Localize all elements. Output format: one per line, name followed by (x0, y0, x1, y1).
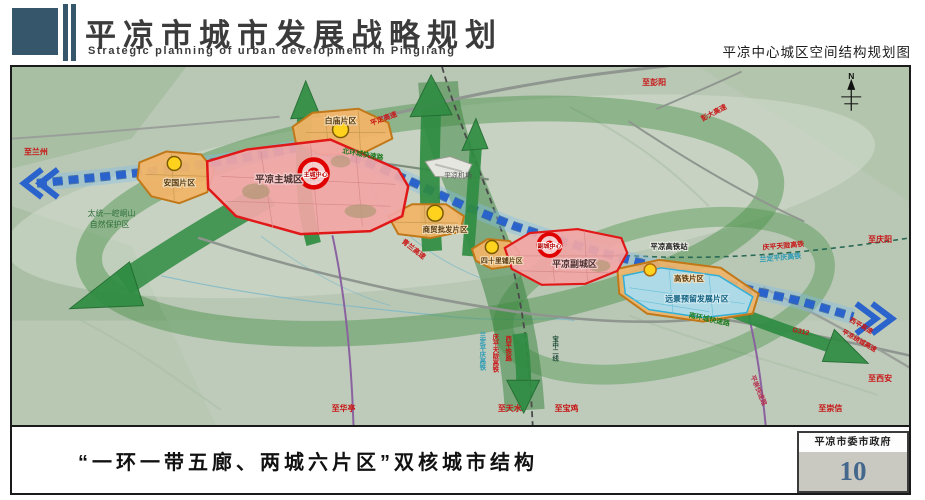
label-district-gaotie: 高铁片区 (674, 273, 704, 283)
map-title: 平凉中心城区空间结构规划图 (723, 41, 912, 61)
label-hsr-station: 平凉高铁站 (650, 241, 688, 251)
label-district-reserve: 远景预留发展片区 (665, 294, 729, 304)
page-number: 10 (799, 452, 907, 491)
slide-frame-left (10, 427, 12, 495)
label-dir-pengyang: 至彭阳 (642, 77, 666, 87)
label-rail-qptl-v: 庆平天陇高铁 (491, 332, 499, 373)
district-node (644, 264, 656, 276)
page-subtitle-en: Strategic planning of urban development … (88, 45, 456, 57)
district-node (485, 241, 498, 254)
label-dir-tianshui: 至天水 (498, 403, 523, 413)
label-dir-huating: 至华亭 (332, 403, 356, 413)
label-main-city: 平凉主城区 (255, 173, 303, 185)
label-dir-chongxin: 至崇信 (818, 403, 842, 413)
label-sub-city: 平凉副城区 (552, 258, 597, 269)
label-dir-xian: 至西安 (868, 373, 892, 383)
label-rail-xiping-v: 西平铁路 (504, 335, 512, 362)
label-dir-lanzhou: 至兰州 (24, 147, 48, 157)
header-accent-bar (63, 4, 68, 61)
district-node (167, 157, 181, 171)
label-district-anguo: 安国片区 (163, 177, 195, 187)
label-rail-ldpq-v: 兰定平庆高铁 (478, 330, 486, 371)
map-caption: “一环一带五廊、两城六片区”双核城市结构 (78, 446, 538, 475)
label-sub-core: 副城中心 (538, 242, 562, 250)
header-logo-square (12, 8, 58, 55)
label-district-shangmao: 商贸批发片区 (423, 224, 468, 234)
structure-map-svg: N 平凉主城区 主城中心 平凉副城区 副城中心 白庙片区 安国片区 商贸批发片区… (12, 67, 909, 425)
header-accent-bar (71, 4, 76, 61)
slide-frame-right (909, 427, 911, 495)
page-number-box: 平凉市委市政府 10 (797, 431, 909, 493)
district-node (427, 205, 443, 221)
planning-map: N 平凉主城区 主城中心 平凉副城区 副城中心 白庙片区 安国片区 商贸批发片区… (10, 65, 911, 427)
slide-frame-bottom (10, 493, 911, 495)
label-rail-baozhong-v: 宝中二线 (551, 334, 558, 362)
organization-label: 平凉市委市政府 (799, 433, 907, 452)
label-dir-baoji: 至宝鸡 (555, 403, 579, 413)
label-nature-reserve: 太统—崆峒山 (88, 208, 136, 218)
label-nature-reserve: 自然保护区 (90, 219, 130, 229)
label-district-sishilipu: 四十里铺片区 (481, 256, 523, 265)
label-district-baimiao: 白庙片区 (325, 116, 357, 126)
label-dir-qingyang: 至庆阳 (868, 234, 892, 244)
label-main-core: 主城中心 (304, 170, 328, 178)
label-airport: 平凉机场 (444, 170, 472, 179)
